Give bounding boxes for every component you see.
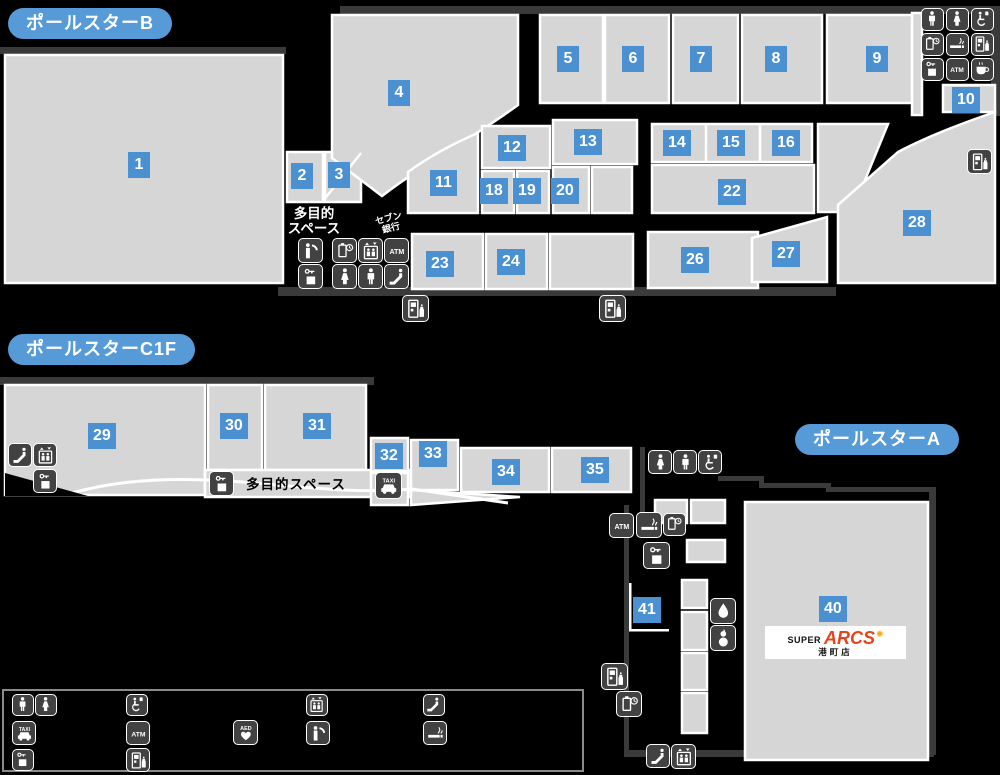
male-toilet-icon	[673, 450, 697, 474]
legend-vending-machine-icon	[126, 748, 150, 772]
room-30-marker: 30	[220, 413, 248, 439]
coin-locker-icon	[209, 471, 234, 496]
water-fountain-icon	[710, 598, 736, 624]
legend-telephone-icon	[306, 721, 330, 745]
coin-locker-icon	[298, 264, 323, 289]
svg-text:ATM: ATM	[614, 523, 629, 531]
room-41-marker: 41	[633, 597, 661, 623]
multipurpose-space-line1: 多目的	[283, 206, 345, 221]
accessible-toilet-icon	[971, 8, 994, 31]
room-23-marker: 23	[426, 251, 454, 277]
mall-floor-map: ポールスターB ポールスターC1F ポールスターA 多目的 スペース セブン 銀…	[0, 0, 1000, 775]
room-8-marker: 8	[765, 46, 787, 72]
cafe-icon	[971, 58, 994, 81]
legend-coin-locker-icon	[12, 749, 34, 771]
room-22-marker: 22	[718, 179, 746, 205]
coin-locker-icon	[643, 542, 670, 569]
room-19-marker: 19	[513, 178, 541, 204]
baby-room-icon	[710, 625, 736, 651]
vending-machine-icon	[971, 33, 994, 56]
room-15-marker: 15	[717, 130, 745, 156]
arcs-super-text: SUPER	[787, 636, 821, 647]
accessible-toilet-icon	[698, 450, 722, 474]
super-arcs-store-sign: SUPER ARCS ✺ 港町店	[765, 626, 906, 659]
room-11-marker: 11	[430, 170, 457, 196]
multipurpose-space-label-c1f: 多目的スペース	[246, 477, 346, 492]
room-26-marker: 26	[681, 247, 709, 273]
svg-text:TAXI: TAXI	[382, 478, 395, 484]
vending-machine-icon	[599, 295, 626, 322]
room-24-marker: 24	[497, 249, 525, 275]
elevator-icon	[358, 238, 383, 263]
arcs-logo-text: ARCS	[824, 629, 875, 647]
female-toilet-icon	[332, 264, 357, 289]
section-label-polestar-a: ポールスターA	[795, 424, 959, 455]
taxi-icon: TAXI	[375, 472, 402, 499]
legend-aed-icon: AED	[233, 720, 258, 745]
arcs-star-icon: ✺	[876, 630, 884, 647]
room-2-marker: 2	[291, 163, 313, 189]
room-31-marker: 31	[303, 413, 331, 439]
room-20-marker: 20	[551, 178, 579, 204]
room-34-marker: 34	[492, 459, 520, 485]
smoking-icon	[946, 33, 969, 56]
coin-locker-icon	[33, 469, 57, 493]
arcs-sign-top-row: SUPER ARCS ✺	[787, 629, 883, 647]
svg-text:AED: AED	[240, 726, 252, 732]
escalator-icon	[646, 744, 670, 768]
arcs-branch-text: 港町店	[818, 648, 853, 657]
female-toilet-icon	[648, 450, 672, 474]
legend-accessible-toilet-icon	[126, 694, 148, 716]
room-18-marker: 18	[480, 178, 508, 204]
room-16-marker: 16	[772, 130, 800, 156]
room-9-marker: 9	[866, 46, 888, 72]
escalator-icon	[384, 264, 409, 289]
male-toilet-icon	[921, 8, 944, 31]
svg-text:TAXI: TAXI	[18, 726, 30, 732]
room-6-marker: 6	[622, 46, 644, 72]
smoking-icon	[636, 512, 662, 538]
room-33-marker: 33	[419, 441, 447, 467]
atm-icon: ATM	[946, 58, 969, 81]
legend-escalator-icon	[423, 694, 445, 716]
legend	[2, 689, 584, 772]
multipurpose-space-label-b: 多目的 スペース	[283, 206, 345, 236]
multipurpose-space-line2: スペース	[283, 221, 345, 236]
room-35-marker: 35	[581, 457, 609, 483]
phone-charging-icon	[616, 691, 642, 717]
vending-machine-icon	[967, 149, 992, 174]
legend-female-toilet-icon	[35, 694, 57, 716]
vending-machine-icon	[402, 295, 429, 322]
phone-charging-icon	[921, 33, 944, 56]
elevator-icon	[671, 744, 696, 769]
room-29-marker: 29	[88, 423, 116, 449]
telephone-icon	[298, 238, 323, 263]
phone-charging-icon	[663, 513, 686, 536]
male-toilet-icon	[358, 264, 383, 289]
room-7-marker: 7	[690, 46, 712, 72]
legend-taxi-icon: TAXI	[12, 721, 36, 745]
room-28-marker: 28	[903, 210, 931, 236]
phone-charging-icon	[332, 238, 357, 263]
room-12-marker: 12	[498, 135, 526, 161]
room-3-marker: 3	[328, 162, 350, 188]
legend-male-toilet-icon	[12, 694, 34, 716]
room-27-marker: 27	[772, 241, 800, 267]
coin-locker-icon	[921, 58, 944, 81]
room-1-marker: 1	[128, 152, 150, 178]
elevator-icon	[33, 443, 57, 467]
escalator-icon	[8, 443, 32, 467]
atm-icon: ATM	[384, 238, 409, 263]
female-toilet-icon	[946, 8, 969, 31]
section-label-polestar-c1f: ポールスターC1F	[8, 334, 195, 365]
room-5-marker: 5	[557, 46, 579, 72]
room-14-marker: 14	[663, 130, 691, 156]
legend-atm-icon: ATM	[126, 721, 150, 745]
room-13-marker: 13	[574, 129, 602, 155]
room-40-marker: 40	[819, 596, 847, 622]
room-4-marker: 4	[388, 80, 410, 106]
room-10-marker: 10	[952, 87, 980, 113]
legend-elevator-icon	[306, 694, 328, 716]
legend-smoking-icon	[423, 721, 447, 745]
svg-text:ATM: ATM	[951, 67, 965, 74]
room-32-marker: 32	[375, 443, 403, 469]
section-label-polestar-b: ポールスターB	[8, 8, 172, 39]
atm-icon: ATM	[609, 513, 634, 538]
vending-machine-icon	[601, 663, 628, 690]
svg-text:ATM: ATM	[389, 248, 404, 256]
svg-text:ATM: ATM	[131, 731, 146, 738]
